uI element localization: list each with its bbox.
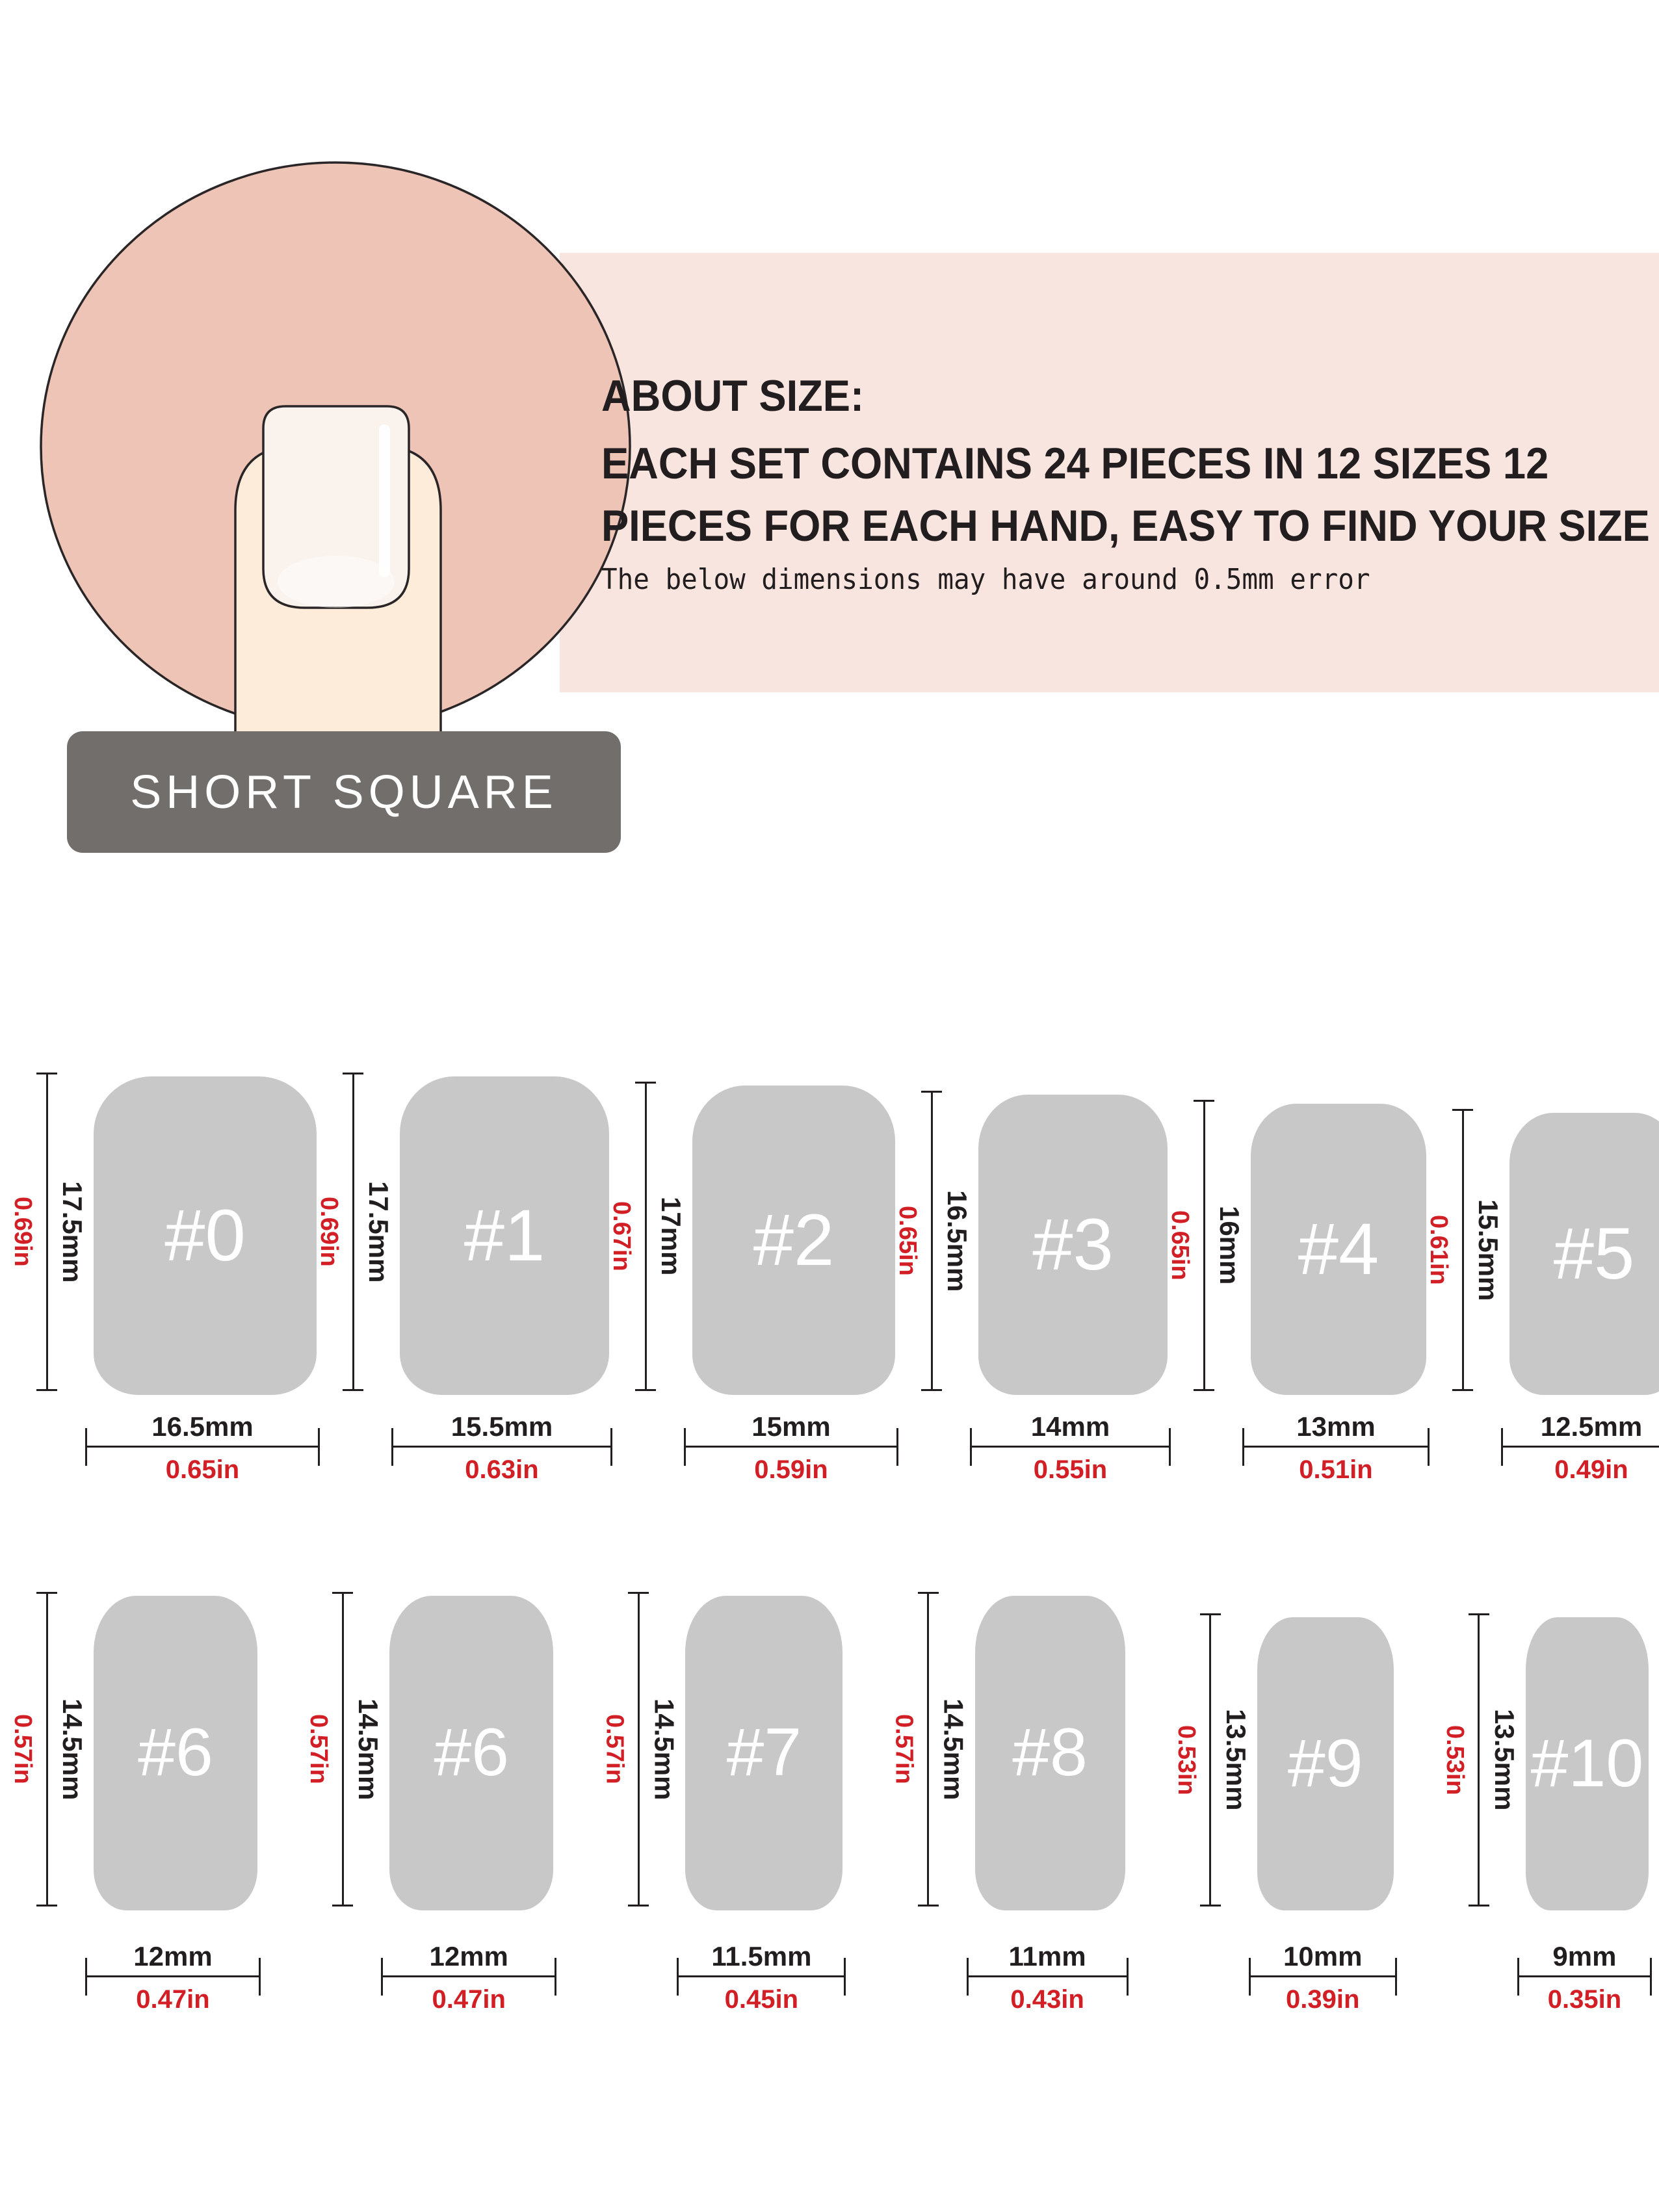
dimension-line-cap: [332, 1905, 353, 1906]
height-mm-label: 17.5mm: [59, 1181, 86, 1282]
nail-size-cell: 0.67in 17mm #2 15mm 0.59in: [609, 1082, 895, 1484]
nail-size-cell: 0.69in 17.5mm #0 16.5mm 0.65in: [10, 1073, 317, 1484]
height-mm-label: 14.5mm: [59, 1698, 86, 1800]
nail-shape: #9: [1257, 1617, 1394, 1910]
nail-size-number: #1: [464, 1193, 545, 1277]
width-inches-label: 0.35in: [1518, 1985, 1651, 2014]
dimension-line-stem: [46, 1074, 48, 1389]
nail-size-cell: 0.65in 16mm #4 13mm 0.51in: [1168, 1100, 1426, 1484]
height-dimension-line: [36, 1073, 57, 1391]
nail-column: #9 10mm 0.39in: [1257, 1617, 1394, 2014]
nail-size-cell: 0.57in 14.5mm #7 11.5mm 0.45in: [602, 1592, 843, 2014]
width-mm-label: 15mm: [685, 1412, 898, 1442]
nail-shape-illustration: [26, 146, 650, 738]
height-dimension-line: [1200, 1613, 1221, 1906]
nail-column: #6 12mm 0.47in: [389, 1596, 553, 2014]
width-dimension-line: [1243, 1446, 1429, 1448]
height-dimension-line: [343, 1073, 363, 1391]
dimension-line-stem: [1203, 1102, 1205, 1389]
width-dimension-line: [392, 1446, 612, 1448]
height-inches-label: 0.69in: [10, 1197, 35, 1267]
width-dimension: 11mm 0.43in: [967, 1942, 1128, 2014]
height-dimension-line: [635, 1082, 656, 1391]
nail-column: #7 11.5mm 0.45in: [685, 1596, 843, 2014]
width-mm-label: 13mm: [1243, 1412, 1429, 1442]
dimension-line-cap: [1200, 1905, 1221, 1906]
width-inches-label: 0.51in: [1243, 1455, 1429, 1484]
nail-column: #0 16.5mm 0.65in: [94, 1076, 317, 1484]
nail-shape: #3: [978, 1095, 1168, 1395]
height-dimension: 0.69in 17.5mm: [317, 1073, 392, 1391]
nail-size-cell: 0.57in 14.5mm #8 11mm 0.43in: [892, 1592, 1125, 2014]
width-mm-label: 11.5mm: [677, 1942, 845, 1971]
height-mm-label: 16.5mm: [943, 1190, 971, 1292]
height-mm-label: 14.5mm: [354, 1698, 382, 1800]
dimension-line-stem: [1462, 1111, 1464, 1389]
width-inches-label: 0.43in: [967, 1985, 1128, 2014]
dimension-line-cap: [1469, 1905, 1489, 1906]
width-mm-label: 12.5mm: [1502, 1412, 1659, 1442]
height-dimension: 0.57in 14.5mm: [306, 1592, 382, 1906]
height-inches-label: 0.57in: [602, 1714, 627, 1784]
nail-shape: #2: [692, 1086, 895, 1395]
height-dimension: 0.67in 17mm: [609, 1082, 685, 1391]
dimension-line-stem: [46, 1594, 48, 1905]
about-size-line2: PIECES FOR EACH HAND, EASY TO FIND YOUR …: [601, 501, 1650, 551]
nail-shape: #5: [1509, 1113, 1659, 1395]
nail-column: #2 15mm 0.59in: [692, 1086, 895, 1484]
width-dimension: 12mm 0.47in: [382, 1942, 556, 2014]
dimension-line-stem: [645, 1084, 647, 1389]
width-mm-label: 14mm: [971, 1412, 1170, 1442]
width-dimension-line: [86, 1446, 319, 1448]
nail-free-edge-highlight: [278, 556, 395, 608]
height-dimension-line: [1452, 1109, 1473, 1391]
size-row-1: 0.69in 17.5mm #0 16.5mm 0.65in 0.69in: [10, 1073, 1649, 1484]
height-mm-label: 17mm: [657, 1197, 685, 1275]
width-mm-label: 12mm: [382, 1942, 556, 1971]
nail-column: #10 9mm 0.35in: [1526, 1617, 1649, 2014]
height-dimension: 0.53in 13.5mm: [1443, 1613, 1518, 1906]
width-dimension: 14mm 0.55in: [971, 1412, 1170, 1484]
dimension-line-stem: [927, 1594, 929, 1905]
nail-shape: #6: [94, 1596, 257, 1910]
width-inches-label: 0.45in: [677, 1985, 845, 2014]
nail-shape: #6: [389, 1596, 553, 1910]
width-dimension-line: [685, 1446, 898, 1448]
nail-column: #6 12mm 0.47in: [94, 1596, 257, 2014]
height-inches-label: 0.67in: [609, 1201, 634, 1271]
nail-shape: #4: [1251, 1104, 1426, 1395]
width-dimension: 16.5mm 0.65in: [86, 1412, 319, 1484]
width-mm-label: 10mm: [1249, 1942, 1396, 1971]
width-dimension-line: [1518, 1975, 1651, 1977]
height-dimension: 0.57in 14.5mm: [602, 1592, 677, 1906]
height-dimension: 0.61in 15.5mm: [1426, 1109, 1502, 1391]
height-dimension: 0.69in 17.5mm: [10, 1073, 86, 1391]
height-dimension-line: [36, 1592, 57, 1906]
nail-column: #4 13mm 0.51in: [1251, 1104, 1426, 1484]
width-mm-label: 11mm: [967, 1942, 1128, 1971]
dimension-line-stem: [352, 1074, 354, 1389]
nail-column: #8 11mm 0.43in: [975, 1596, 1125, 2014]
size-row-2: 0.57in 14.5mm #6 12mm 0.47in 0.57in: [10, 1591, 1649, 2014]
nail-shape: #10: [1526, 1617, 1649, 1910]
height-dimension-line: [921, 1091, 942, 1391]
width-dimension: 10mm 0.39in: [1249, 1942, 1396, 2014]
height-mm-label: 15.5mm: [1474, 1199, 1502, 1301]
dimension-line-cap: [921, 1389, 942, 1391]
shape-style-label: SHORT SQUARE: [67, 731, 621, 853]
nail-column: #1 15.5mm 0.63in: [400, 1076, 609, 1484]
width-inches-label: 0.59in: [685, 1455, 898, 1484]
about-size-title: ABOUT SIZE:: [601, 371, 1650, 421]
width-dimension-line: [1502, 1446, 1659, 1448]
width-inches-label: 0.39in: [1249, 1985, 1396, 2014]
nail-column: #5 12.5mm 0.49in: [1509, 1113, 1659, 1484]
height-inches-label: 0.65in: [895, 1206, 920, 1276]
nail-shape: #0: [94, 1076, 317, 1395]
dimension-line-stem: [342, 1594, 344, 1905]
height-mm-label: 13.5mm: [1222, 1709, 1249, 1810]
nail-size-number: #0: [164, 1193, 246, 1277]
height-dimension: 0.57in 14.5mm: [892, 1592, 967, 1906]
height-inches-label: 0.61in: [1426, 1215, 1451, 1285]
nail-size-number: #8: [1012, 1714, 1088, 1791]
shape-style-label-text: SHORT SQUARE: [130, 766, 557, 819]
height-inches-label: 0.53in: [1174, 1725, 1199, 1795]
nail-size-number: #6: [138, 1714, 213, 1791]
width-mm-label: 16.5mm: [86, 1412, 319, 1442]
dimension-line-cap: [1452, 1389, 1473, 1391]
dimension-line-cap: [628, 1905, 649, 1906]
nail-size-cell: 0.57in 14.5mm #6 12mm 0.47in: [306, 1592, 553, 2014]
dimension-line-cap: [36, 1905, 57, 1906]
width-mm-label: 9mm: [1518, 1942, 1651, 1971]
nail-size-number: #10: [1531, 1725, 1644, 1802]
width-dimension: 12.5mm 0.49in: [1502, 1412, 1659, 1484]
dimension-line-cap: [36, 1389, 57, 1391]
height-dimension-line: [918, 1592, 939, 1906]
width-dimension: 15mm 0.59in: [685, 1412, 898, 1484]
height-inches-label: 0.69in: [317, 1197, 341, 1267]
height-inches-label: 0.57in: [10, 1714, 35, 1784]
width-inches-label: 0.47in: [86, 1985, 260, 2014]
nail-size-cell: 0.65in 16.5mm #3 14mm 0.55in: [895, 1091, 1168, 1484]
height-inches-label: 0.53in: [1443, 1725, 1467, 1795]
width-mm-label: 12mm: [86, 1942, 260, 1971]
nail-size-cell: 0.53in 13.5mm #10 9mm 0.35in: [1443, 1613, 1649, 2014]
width-dimension-line: [677, 1975, 845, 1977]
nail-size-number: #5: [1554, 1212, 1635, 1295]
nail-size-cell: 0.57in 14.5mm #6 12mm 0.47in: [10, 1592, 257, 2014]
height-dimension-line: [1469, 1613, 1489, 1906]
nail-size-cell: 0.69in 17.5mm #1 15.5mm 0.63in: [317, 1073, 609, 1484]
height-mm-label: 14.5mm: [650, 1698, 677, 1800]
about-size-text-block: ABOUT SIZE: EACH SET CONTAINS 24 PIECES …: [601, 371, 1650, 596]
width-inches-label: 0.63in: [392, 1455, 612, 1484]
nail-size-number: #6: [434, 1714, 509, 1791]
dimension-line-cap: [343, 1389, 363, 1391]
height-inches-label: 0.65in: [1168, 1210, 1192, 1281]
width-inches-label: 0.49in: [1502, 1455, 1659, 1484]
nail-size-cell: 0.53in 13.5mm #9 10mm 0.39in: [1174, 1613, 1394, 2014]
width-dimension: 9mm 0.35in: [1518, 1942, 1651, 2014]
width-dimension-line: [382, 1975, 556, 1977]
height-dimension: 0.65in 16mm: [1168, 1100, 1243, 1391]
dimension-line-stem: [1478, 1615, 1480, 1905]
width-dimension: 15.5mm 0.63in: [392, 1412, 612, 1484]
nail-size-cell: 0.61in 15.5mm #5 12.5mm 0.49in: [1426, 1109, 1659, 1484]
nail-size-number: #7: [727, 1714, 802, 1791]
height-mm-label: 13.5mm: [1491, 1709, 1518, 1810]
width-inches-label: 0.55in: [971, 1455, 1170, 1484]
about-size-note: The below dimensions may have around 0.5…: [601, 563, 1650, 596]
nail-gloss-highlight: [379, 424, 390, 577]
nail-size-number: #2: [753, 1198, 835, 1282]
width-inches-label: 0.65in: [86, 1455, 319, 1484]
height-dimension: 0.65in 16.5mm: [895, 1091, 971, 1391]
dimension-line-cap: [1194, 1389, 1214, 1391]
height-mm-label: 16mm: [1216, 1206, 1243, 1284]
dimension-line-stem: [931, 1093, 933, 1389]
width-inches-label: 0.47in: [382, 1985, 556, 2014]
nail-size-number: #3: [1032, 1203, 1114, 1286]
dimension-line-stem: [638, 1594, 640, 1905]
height-dimension: 0.57in 14.5mm: [10, 1592, 86, 1906]
width-dimension-line: [967, 1975, 1128, 1977]
nail-size-number: #9: [1288, 1725, 1363, 1802]
nail-shape: #8: [975, 1596, 1125, 1910]
height-inches-label: 0.57in: [892, 1714, 917, 1784]
nail-shape: #1: [400, 1076, 609, 1395]
width-mm-label: 15.5mm: [392, 1412, 612, 1442]
height-dimension-line: [332, 1592, 353, 1906]
height-dimension: 0.53in 13.5mm: [1174, 1613, 1249, 1906]
width-dimension: 13mm 0.51in: [1243, 1412, 1429, 1484]
nail-column: #3 14mm 0.55in: [978, 1095, 1168, 1484]
dimension-line-cap: [635, 1389, 656, 1391]
nail-size-number: #4: [1298, 1207, 1379, 1291]
height-dimension-line: [628, 1592, 649, 1906]
height-inches-label: 0.57in: [306, 1714, 331, 1784]
width-dimension: 11.5mm 0.45in: [677, 1942, 845, 2014]
height-mm-label: 14.5mm: [940, 1698, 967, 1800]
about-size-line1: EACH SET CONTAINS 24 PIECES IN 12 SIZES …: [601, 438, 1650, 489]
height-mm-label: 17.5mm: [365, 1181, 392, 1282]
dimension-line-stem: [1209, 1615, 1211, 1905]
width-dimension: 12mm 0.47in: [86, 1942, 260, 2014]
width-dimension-line: [1249, 1975, 1396, 1977]
width-dimension-line: [86, 1975, 260, 1977]
dimension-line-cap: [918, 1905, 939, 1906]
nail-shape: #7: [685, 1596, 843, 1910]
nail-size-chart-page: { "header": { "shape_label": "SHORT SQUA…: [0, 0, 1659, 2212]
height-dimension-line: [1194, 1100, 1214, 1391]
width-dimension-line: [971, 1446, 1170, 1448]
